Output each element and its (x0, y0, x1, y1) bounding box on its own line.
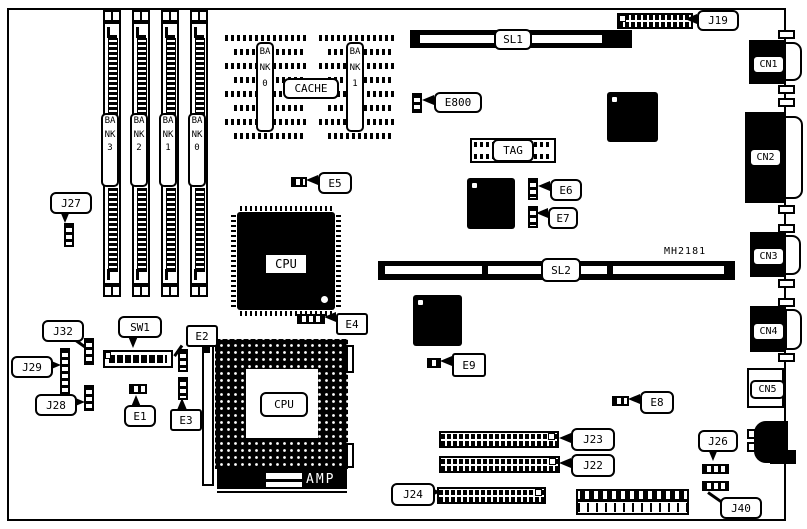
e8-label: E8 (640, 391, 674, 414)
simm-slot-bottom (103, 285, 121, 297)
jumper-e800 (412, 93, 422, 113)
din-pin-tab (747, 442, 756, 452)
chip-qfp (607, 92, 658, 142)
pin1-dot (472, 183, 477, 188)
cn2-label: CN2 (749, 148, 782, 167)
simm-contacts (166, 188, 176, 272)
j19-label: J19 (697, 10, 739, 31)
power-connector (576, 489, 689, 515)
j32-label: J32 (42, 320, 84, 342)
j24-label: J24 (391, 483, 435, 506)
j26-label: J26 (698, 430, 738, 452)
simm-bank3-label: BANK3 (101, 113, 119, 187)
simm-contacts (137, 188, 147, 272)
e6-label: E6 (550, 179, 582, 201)
cn4-port-outline (785, 309, 802, 350)
leader-e4 (324, 312, 336, 322)
socket-lever-bar (202, 344, 214, 486)
jumper-e9 (427, 358, 441, 368)
header-j26 (702, 464, 729, 474)
cache-bank0-label: BANK0 (256, 42, 274, 132)
leader-j22 (559, 458, 571, 468)
leader-e9 (440, 356, 452, 366)
cpu-socket-label: CPU (260, 392, 308, 417)
amp-underline (217, 491, 347, 493)
simm-key-notch (136, 27, 146, 38)
pin1-marker (550, 459, 555, 464)
jumper-e2 (178, 349, 188, 372)
leader-e7 (536, 208, 548, 218)
amp-window (266, 473, 302, 479)
sl2-label: SL2 (541, 258, 581, 282)
cache-label: CACHE (283, 78, 339, 99)
simm-bank1-label: BANK1 (159, 113, 177, 187)
amp-window (266, 482, 302, 487)
j23-label: J23 (571, 428, 615, 451)
e1-label: E1 (124, 405, 156, 427)
simm-key-notch (194, 269, 204, 280)
e7-label: E7 (548, 207, 578, 229)
sw1-label: SW1 (118, 316, 162, 338)
board-corner-step (770, 450, 796, 464)
simm-contacts (195, 188, 205, 272)
simm-contacts (108, 188, 118, 272)
leader-e5 (306, 175, 318, 185)
mount-tab (778, 85, 795, 94)
mount-tab (778, 205, 795, 214)
din-pin-tab (747, 429, 756, 439)
pin1-marker (536, 490, 541, 495)
simm-contacts (195, 38, 205, 116)
simm-contacts (166, 38, 176, 116)
mount-tab (778, 353, 795, 362)
slot-opening (488, 266, 544, 274)
e800-label: E800 (434, 92, 482, 113)
simm-slot-top (103, 10, 121, 22)
chip-qfp (413, 295, 462, 346)
motherboard-layout-diagram: BANK3 BANK2 BANK1 BANK0 BANK (0, 0, 807, 529)
leader-j19 (685, 14, 697, 24)
simm-contacts (137, 38, 147, 116)
jumper-e8 (612, 396, 629, 406)
simm-key-notch (107, 27, 117, 38)
simm-key-notch (107, 269, 117, 280)
cn1-label: CN1 (752, 55, 785, 74)
jumper-e3 (178, 377, 188, 400)
simm-slot-bottom (161, 285, 179, 297)
sl1-label: SL1 (494, 29, 532, 50)
slot-opening (613, 266, 724, 274)
chip-qfp (467, 178, 515, 229)
socket-lever-notch (204, 347, 210, 353)
dip-switch-sw1 (103, 350, 173, 368)
simm-slot-bottom (190, 285, 208, 297)
power-pins (578, 491, 687, 502)
cn2-port-outline (784, 116, 803, 199)
pin1-marker (549, 434, 554, 439)
pin1-marker (620, 16, 625, 21)
jumper-e6 (528, 178, 538, 200)
power-sockets (578, 503, 687, 512)
jumper-e1 (129, 384, 147, 394)
mount-tab (778, 279, 795, 288)
slot-opening (385, 266, 482, 274)
j22-label: J22 (571, 454, 615, 477)
header-j28 (84, 385, 94, 411)
cache-chip-row (229, 131, 305, 141)
e3-label: E3 (170, 409, 202, 431)
leader-j23 (559, 433, 571, 443)
simm-slot-top (161, 10, 179, 22)
j40-label: J40 (720, 497, 762, 519)
pin1-dot (612, 97, 617, 102)
cpu-qfp-label: CPU (266, 255, 306, 273)
mount-tab (778, 98, 795, 107)
jumper-e5 (291, 177, 307, 187)
mount-tab (778, 30, 795, 39)
j27-label: J27 (50, 192, 92, 214)
cache-chip-row (323, 131, 393, 141)
socket-tab (346, 345, 354, 373)
j29-label: J29 (11, 356, 53, 378)
pin1-marker (106, 353, 110, 358)
header-j19 (617, 13, 693, 29)
header-j29 (60, 348, 70, 395)
e2-label: E2 (186, 325, 218, 347)
e5-label: E5 (318, 172, 352, 194)
socket-tab (346, 443, 354, 468)
cn3-port-outline (784, 235, 801, 275)
pin1-dot (321, 296, 328, 303)
cn1-port-outline (784, 42, 802, 81)
cpu-pins (336, 215, 341, 307)
simm-key-notch (165, 27, 175, 38)
cn3-label: CN3 (752, 247, 785, 266)
slot-opening (577, 266, 607, 274)
board-part-number: MH2181 (664, 246, 706, 257)
e4-label: E4 (336, 313, 368, 335)
cpu-pins (231, 215, 236, 307)
simm-slot-bottom (132, 285, 150, 297)
header-j40 (702, 481, 729, 491)
header-j27 (64, 223, 74, 247)
simm-slot-top (132, 10, 150, 22)
pin1-dot (418, 300, 423, 305)
header-j32 (84, 338, 94, 365)
header-j23 (439, 431, 559, 448)
leader-e6 (538, 181, 550, 191)
jumper-e4 (297, 314, 325, 324)
amp-label: AMP (306, 472, 335, 487)
simm-key-notch (194, 27, 204, 38)
simm-contacts (108, 38, 118, 116)
header-j24 (437, 487, 546, 504)
leader-e800 (422, 95, 434, 105)
j28-label: J28 (35, 394, 77, 416)
cache-bank1-label: BANK1 (346, 42, 364, 132)
simm-key-notch (165, 269, 175, 280)
simm-slot-top (190, 10, 208, 22)
cn5-label: CN5 (750, 380, 785, 399)
header-j22 (439, 456, 560, 473)
cn4-label: CN4 (752, 322, 785, 341)
tag-label: TAG (492, 139, 534, 162)
simm-bank0-label: BANK0 (188, 113, 206, 187)
e9-label: E9 (452, 353, 486, 377)
leader-e8 (628, 394, 640, 404)
simm-bank2-label: BANK2 (130, 113, 148, 187)
simm-key-notch (136, 269, 146, 280)
cpu-pins (240, 206, 332, 211)
